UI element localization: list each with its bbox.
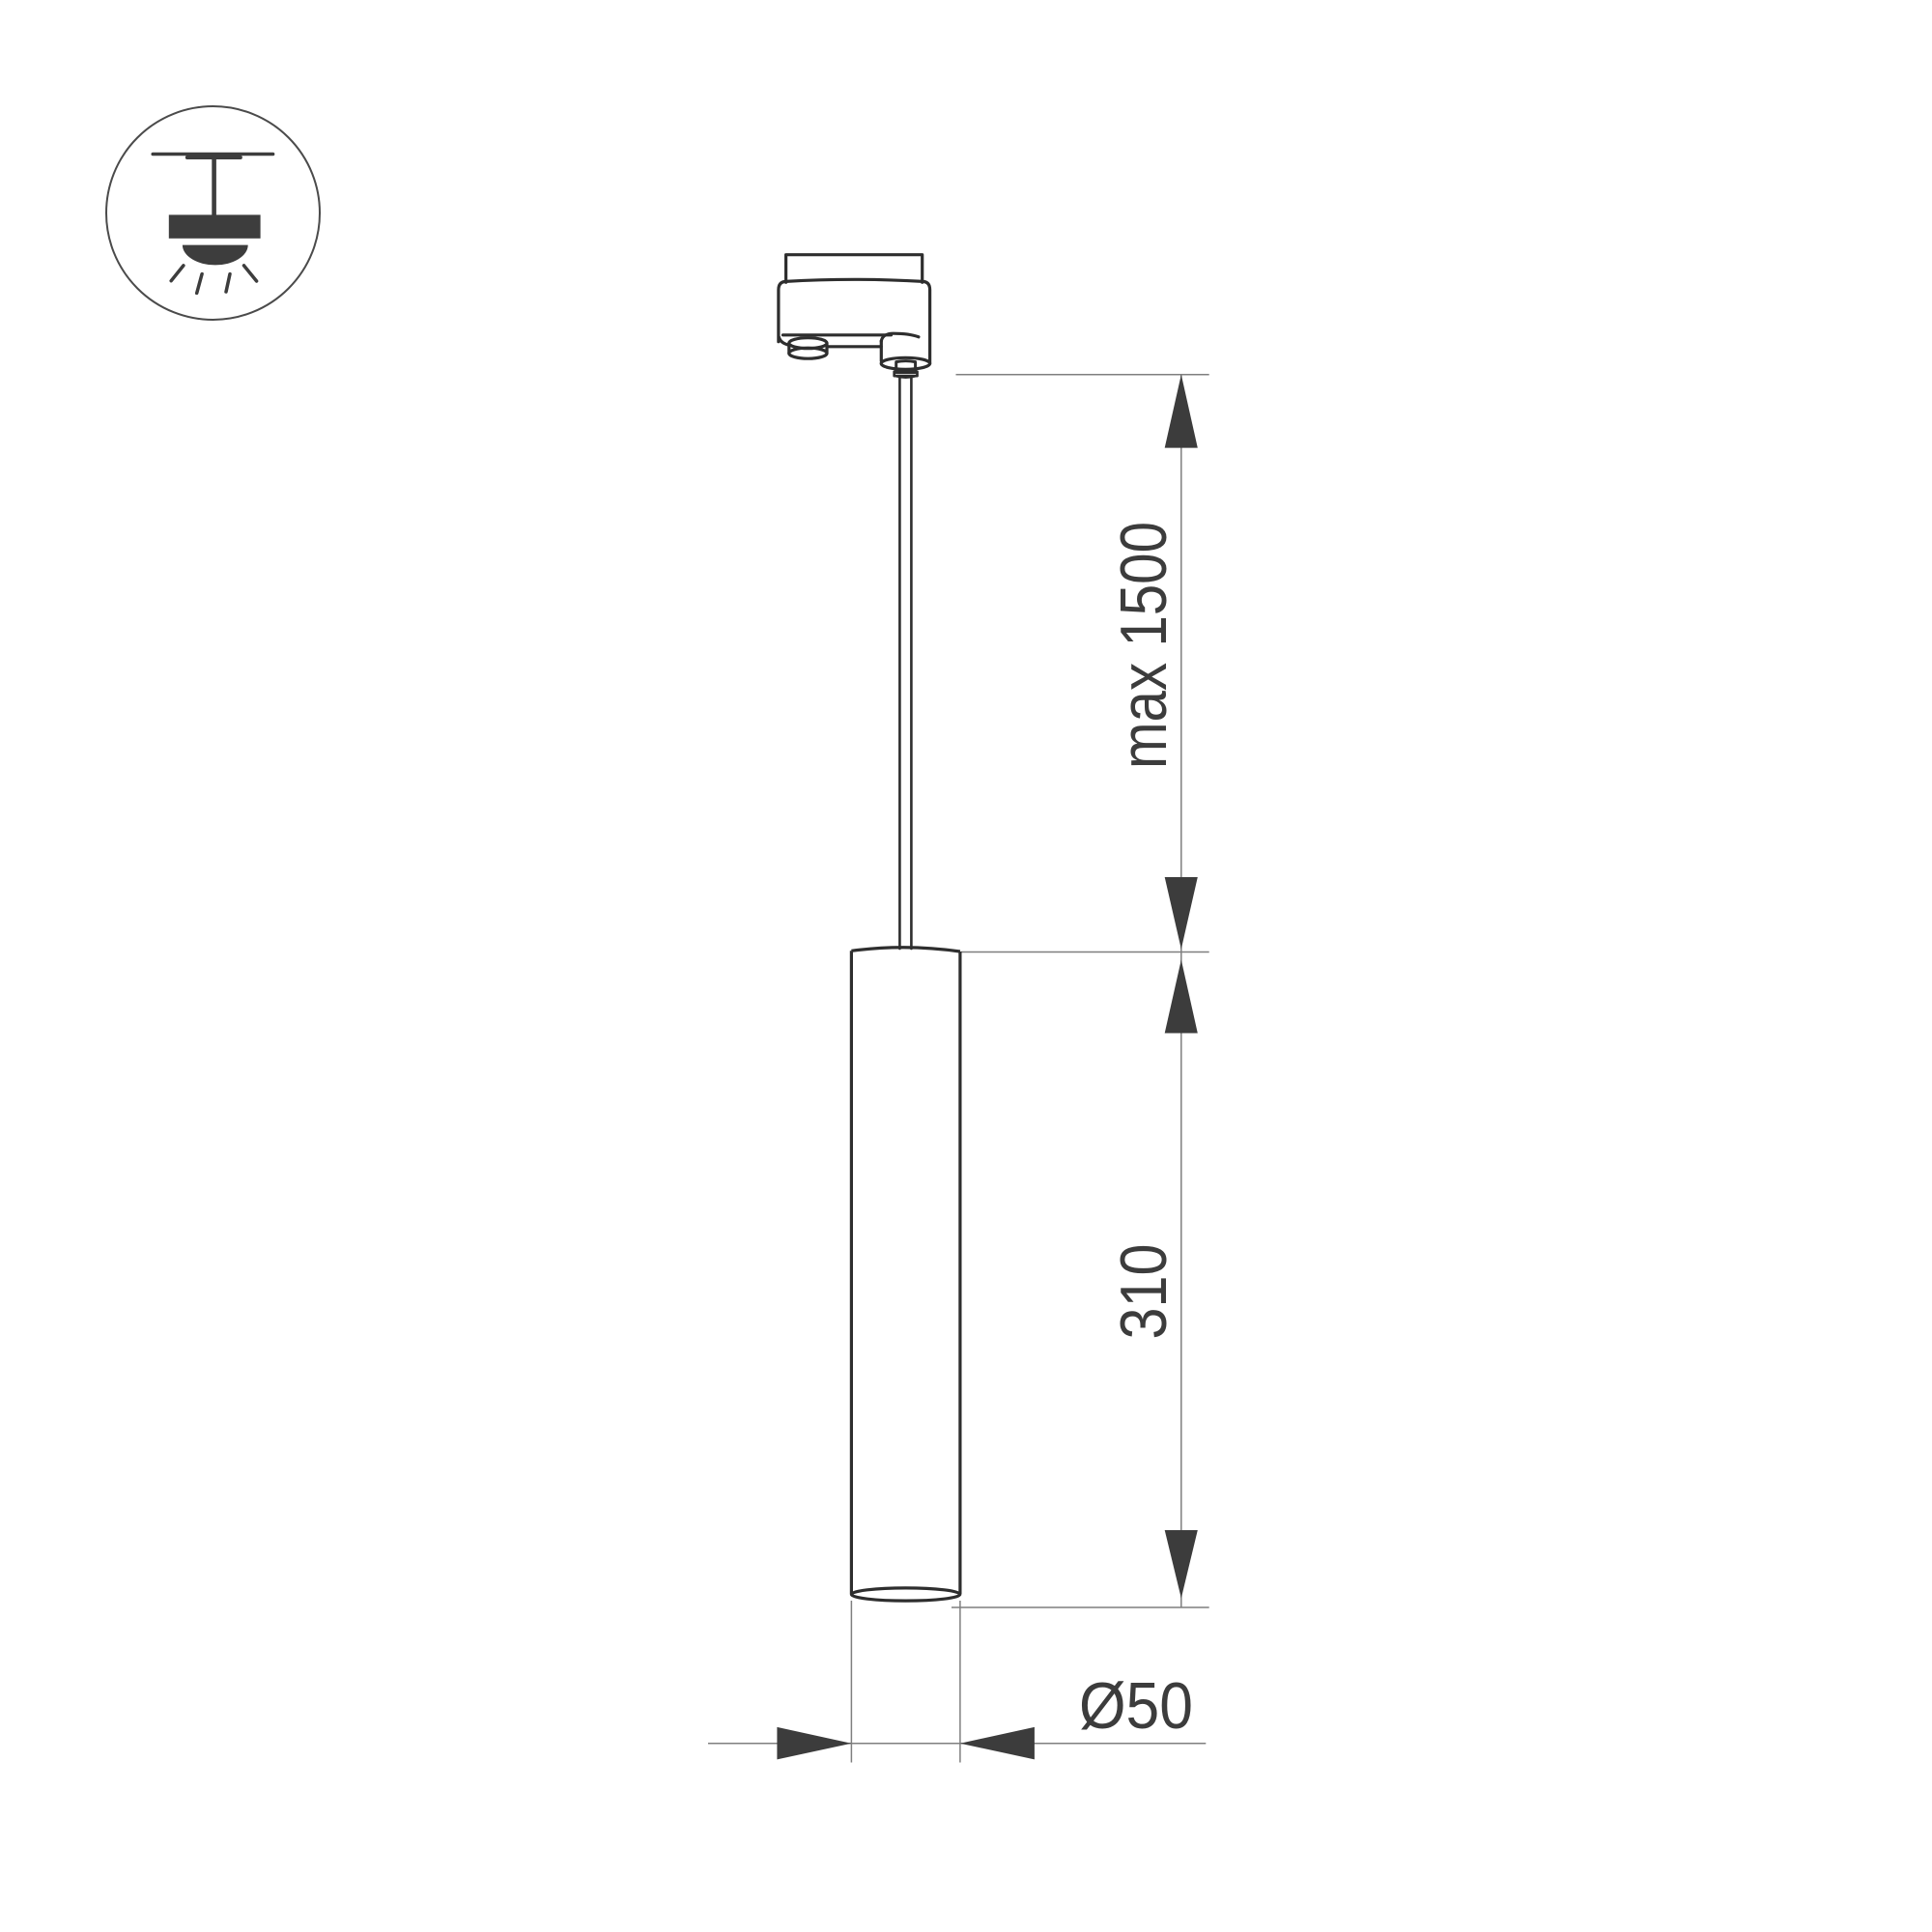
- svg-text:max 1500: max 1500: [1107, 522, 1180, 769]
- svg-text:Ø50: Ø50: [1079, 1669, 1193, 1743]
- svg-text:310: 310: [1107, 1244, 1180, 1340]
